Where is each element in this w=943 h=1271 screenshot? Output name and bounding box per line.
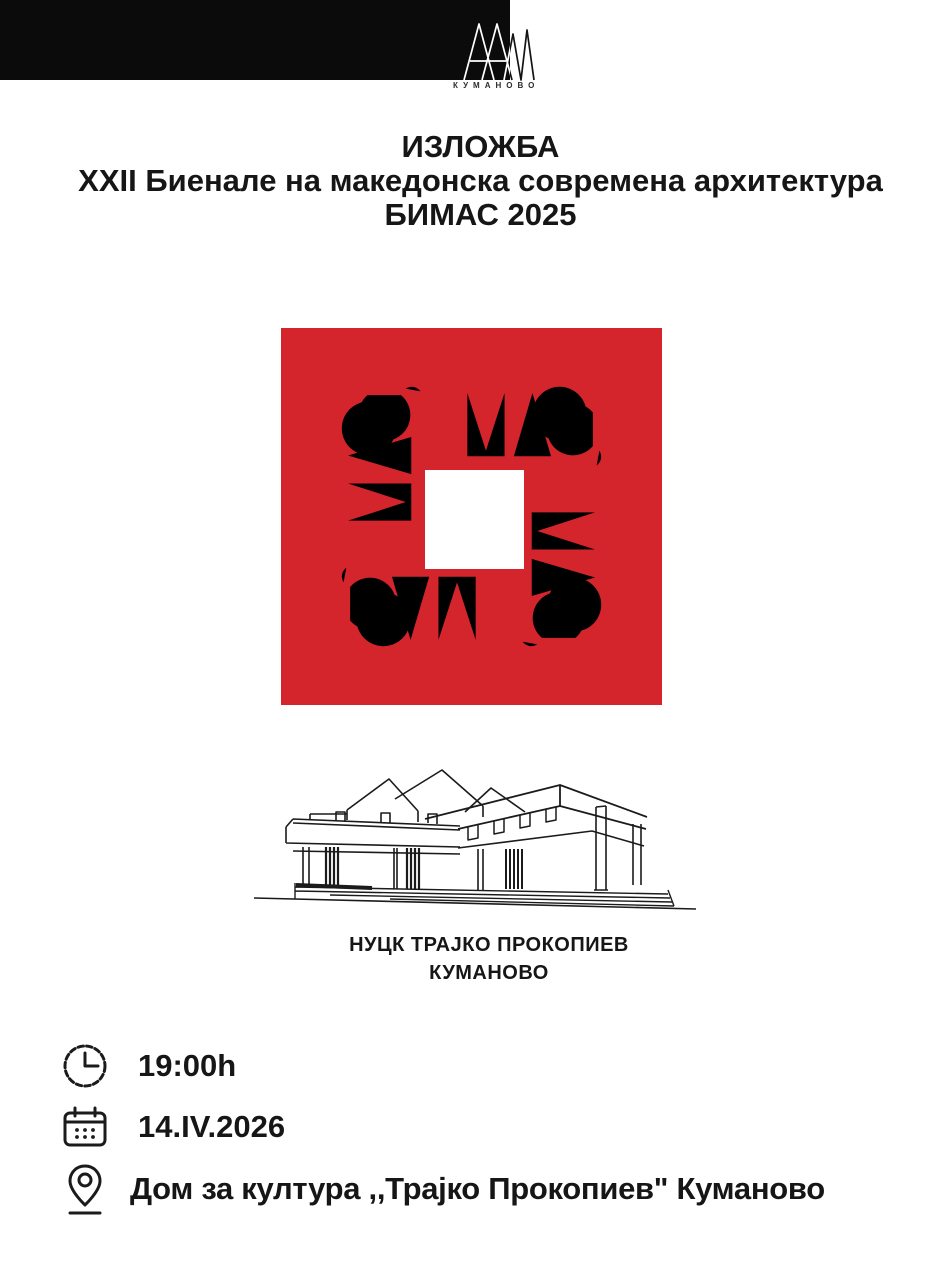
event-date: 14.IV.2026 — [138, 1109, 285, 1145]
detail-time: 19:00h — [62, 1040, 236, 1092]
poster-title: ИЗЛОЖБА XXII Биенале на македонска совре… — [9, 130, 943, 232]
title-biennale: XXII Биенале на македонска современа арх… — [9, 164, 943, 198]
building-illustration — [250, 757, 700, 937]
bimas-logo — [281, 328, 662, 705]
calendar-icon — [62, 1101, 108, 1153]
bimas-center-square — [425, 470, 524, 569]
event-location: Дом за култура ,,Трајко Прокопиев" Куман… — [130, 1171, 825, 1207]
poster: КУМАНОВО ИЗЛОЖБА XXII Биенале на македон… — [0, 0, 943, 1271]
venue-caption: НУЦК ТРАЈКО ПРОКОПИЕВ КУМАНОВО — [259, 931, 719, 987]
title-exhibition: ИЗЛОЖБА — [9, 130, 943, 164]
location-pin-icon — [62, 1163, 108, 1215]
detail-location: Дом за култура ,,Трајко Прокопиев" Куман… — [62, 1163, 825, 1215]
venue-city: КУМАНОВО — [259, 959, 719, 987]
event-time: 19:00h — [138, 1048, 236, 1084]
aam-logo-subtitle: КУМАНОВО — [453, 81, 563, 90]
clock-icon — [62, 1040, 108, 1092]
venue-name: НУЦК ТРАЈКО ПРОКОПИЕВ — [259, 931, 719, 959]
header-bar — [0, 0, 510, 80]
detail-date: 14.IV.2026 — [62, 1101, 285, 1153]
title-bimas-year: БИМАС 2025 — [9, 198, 943, 232]
